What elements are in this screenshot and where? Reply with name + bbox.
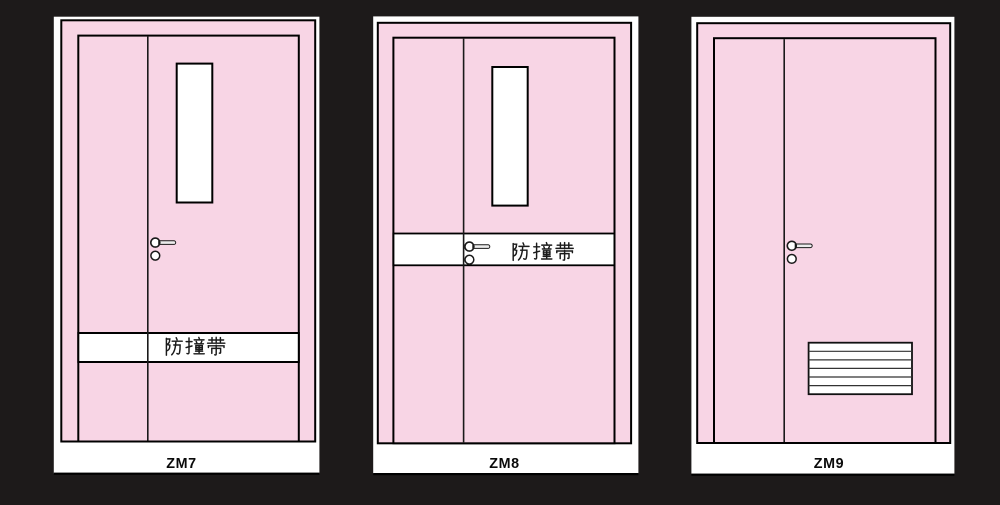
svg-text:ZM8: ZM8 bbox=[489, 456, 519, 472]
svg-text:ZM9: ZM9 bbox=[814, 456, 844, 472]
svg-text:ZM7: ZM7 bbox=[166, 456, 196, 472]
